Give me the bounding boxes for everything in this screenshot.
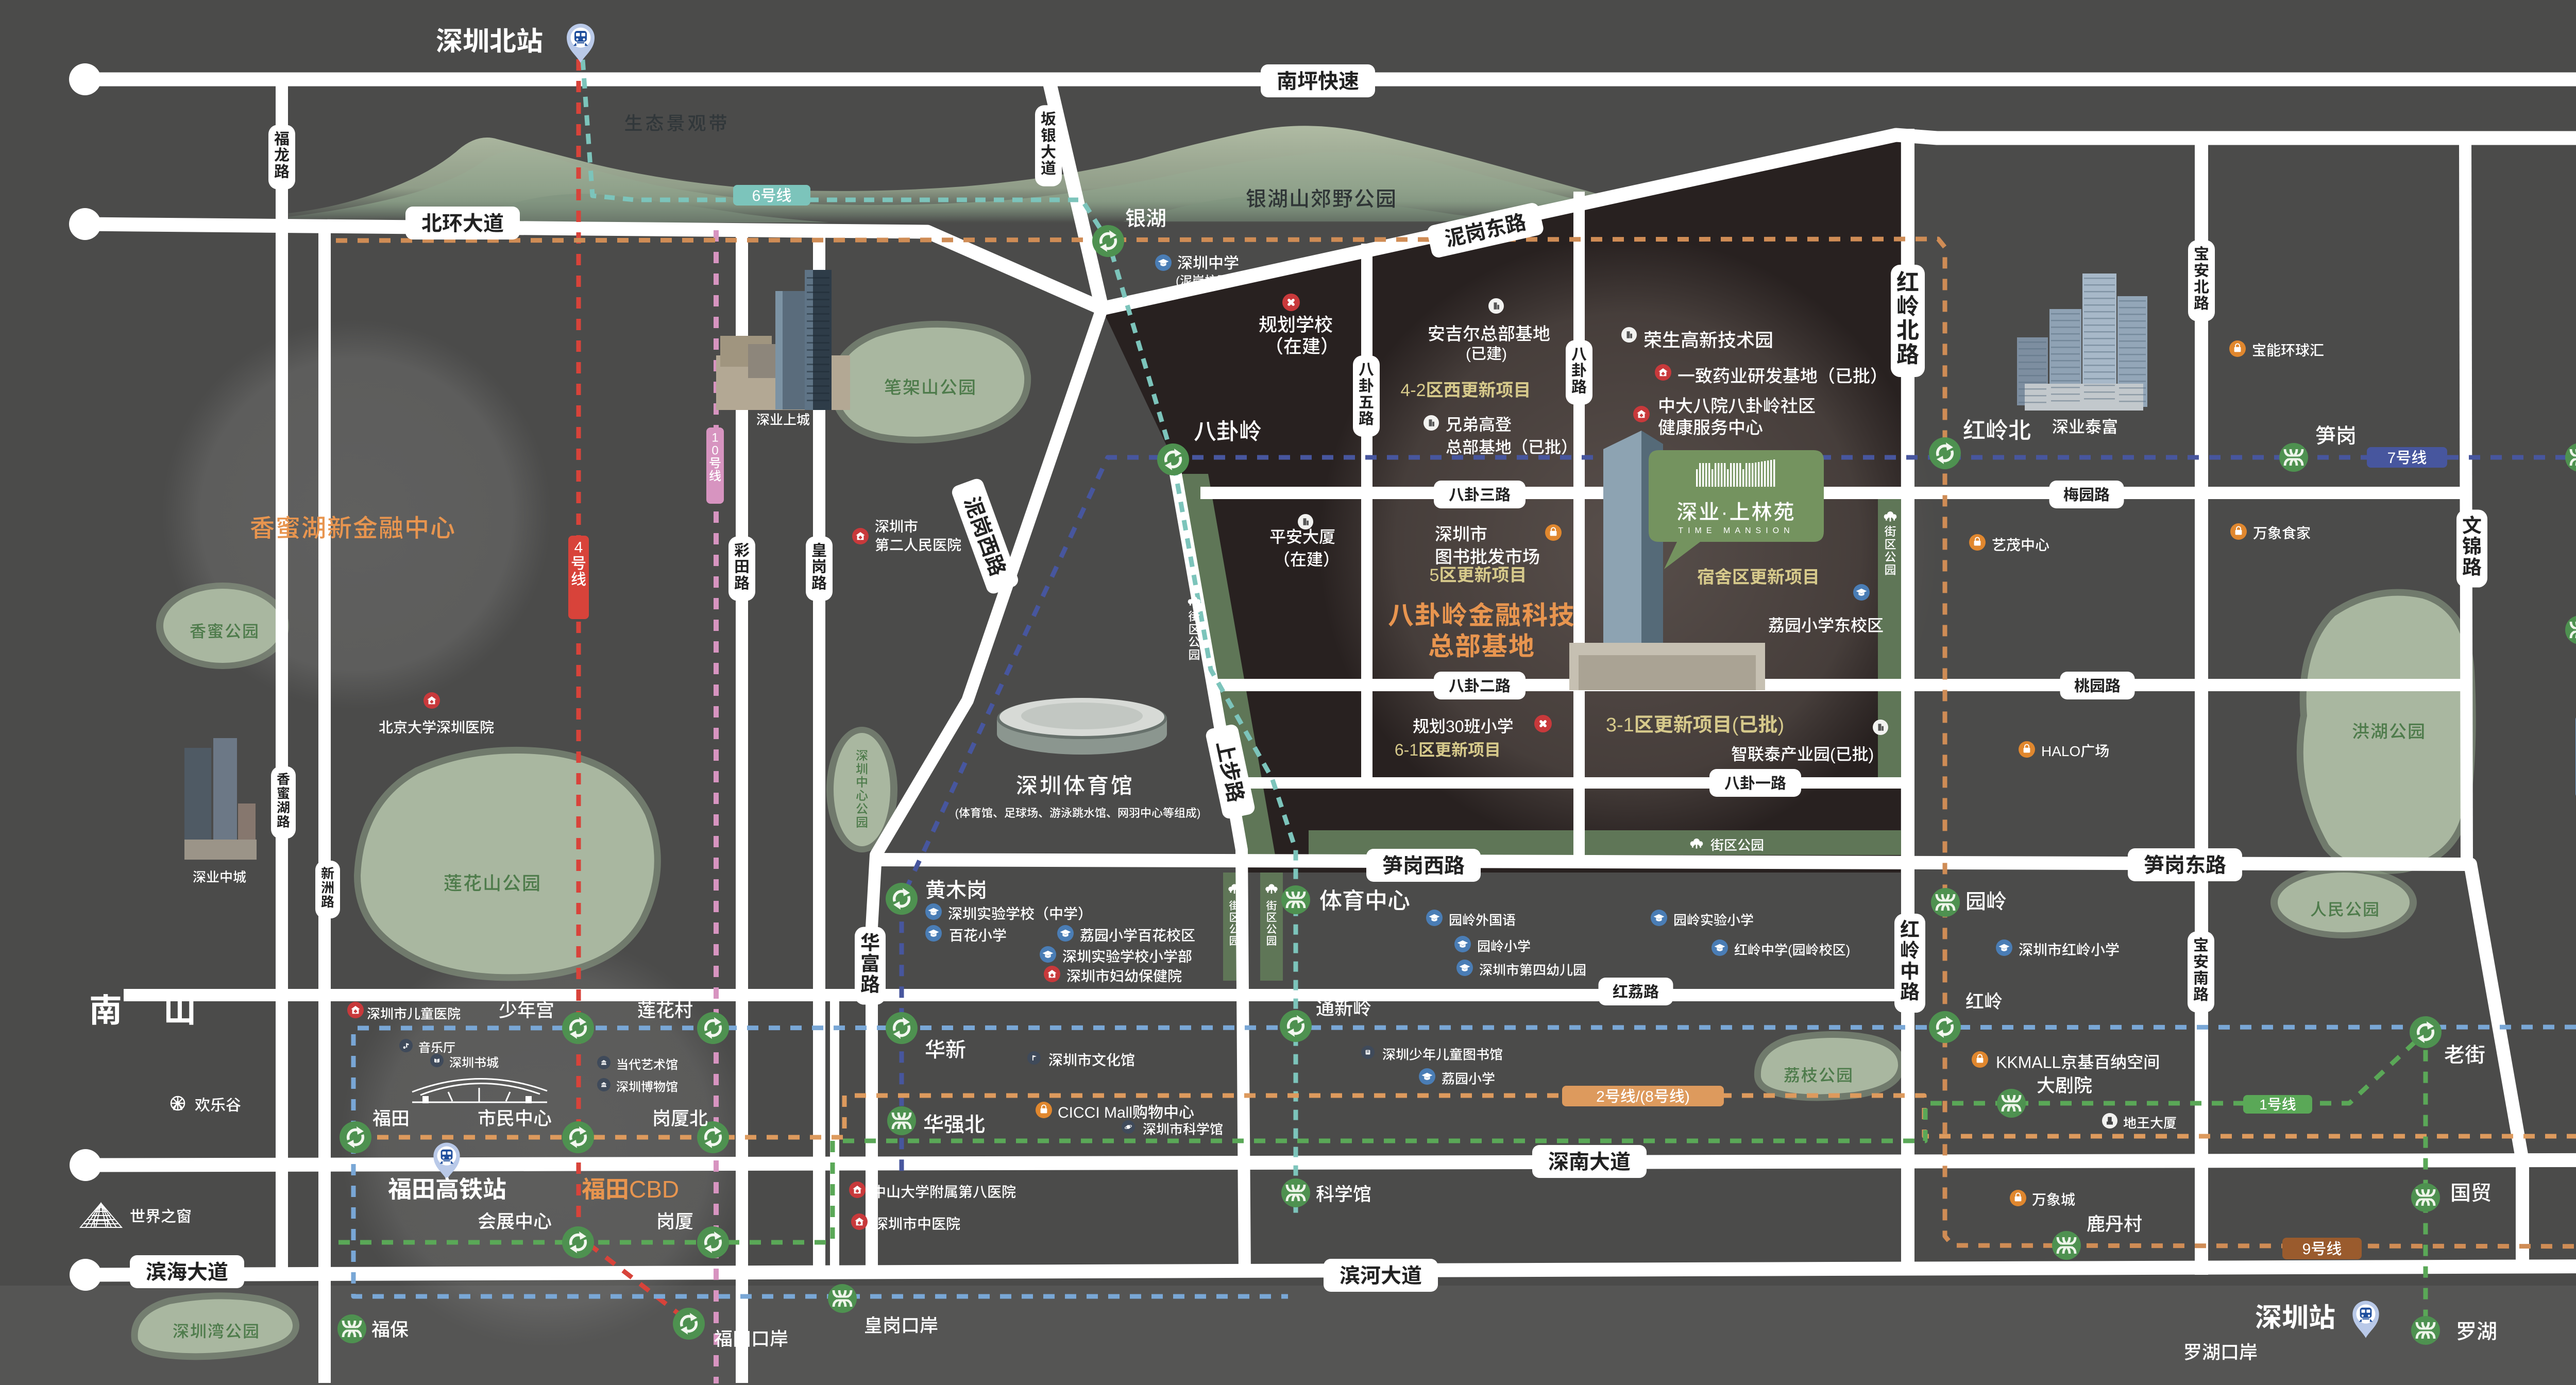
svg-text:荔枝公园: 荔枝公园 — [1784, 1063, 1854, 1086]
svg-text:北京大学深圳医院: 北京大学深圳医院 — [379, 716, 494, 737]
svg-text:(已建): (已建) — [1466, 341, 1507, 364]
svg-text:2号线/(8号线): 2号线/(8号线) — [1596, 1084, 1690, 1106]
svg-text:福保: 福保 — [371, 1315, 409, 1342]
svg-text:园岭实验小学: 园岭实验小学 — [1673, 910, 1754, 929]
svg-text:红岭北: 红岭北 — [1963, 412, 2031, 445]
svg-text:笋岗西路: 笋岗西路 — [1382, 849, 1465, 879]
svg-text:国贸: 国贸 — [2450, 1176, 2492, 1206]
svg-text:八卦岭: 八卦岭 — [1194, 413, 1262, 446]
svg-text:笔架山公园: 笔架山公园 — [884, 373, 977, 399]
svg-text:华新: 华新 — [925, 1033, 966, 1063]
svg-text:园: 园 — [1189, 645, 1200, 663]
svg-text:深圳书城: 深圳书城 — [449, 1053, 499, 1071]
svg-text:八卦二路: 八卦二路 — [1449, 673, 1511, 696]
svg-text:罗湖口岸: 罗湖口岸 — [2183, 1338, 2258, 1364]
svg-text:欢乐谷: 欢乐谷 — [195, 1092, 241, 1115]
svg-text:中山大学附属第八医院: 中山大学附属第八医院 — [872, 1181, 1016, 1202]
svg-text:世界之窗: 世界之窗 — [130, 1204, 192, 1226]
svg-text:智联泰产业园(已批): 智联泰产业园(已批) — [1731, 742, 1874, 765]
svg-text:路: 路 — [860, 968, 880, 997]
svg-text:荔园小学东校区: 荔园小学东校区 — [1768, 613, 1884, 637]
svg-text:园: 园 — [1229, 933, 1240, 948]
svg-text:皇岗口岸: 皇岗口岸 — [864, 1311, 938, 1338]
svg-text:滨海大道: 滨海大道 — [146, 1255, 228, 1285]
svg-text:市民中心: 市民中心 — [478, 1104, 552, 1131]
svg-text:园: 园 — [856, 812, 868, 830]
svg-text:百花小学: 百花小学 — [949, 925, 1007, 945]
svg-text:银湖: 银湖 — [1125, 202, 1166, 232]
svg-text:桃园路: 桃园路 — [2074, 673, 2121, 696]
svg-text:路: 路 — [1359, 406, 1374, 429]
svg-text:（在建）: （在建） — [1274, 547, 1340, 571]
svg-text:艺茂中心: 艺茂中心 — [1992, 534, 2049, 555]
svg-text:笋岗: 笋岗 — [2315, 419, 2357, 449]
svg-text:笋岗东路: 笋岗东路 — [2144, 848, 2226, 878]
svg-text:莲花村: 莲花村 — [637, 996, 693, 1022]
svg-text:岗厦北: 岗厦北 — [652, 1104, 708, 1131]
svg-text:兄弟高登: 兄弟高登 — [1446, 412, 1512, 436]
svg-text:6号线: 6号线 — [752, 183, 792, 206]
svg-text:南: 南 — [89, 984, 122, 1032]
svg-text:平安大厦: 平安大厦 — [1269, 524, 1335, 548]
svg-text:深圳少年儿童图书馆: 深圳少年儿童图书馆 — [1382, 1044, 1503, 1063]
svg-text:南坪快速: 南坪快速 — [1277, 64, 1359, 94]
svg-text:1号线: 1号线 — [2259, 1093, 2296, 1114]
svg-text:深南大道: 深南大道 — [1548, 1145, 1631, 1175]
svg-text:6-1区更新项目: 6-1区更新项目 — [1395, 737, 1501, 761]
svg-text:一致药业研发基地（已批）: 一致药业研发基地（已批） — [1677, 362, 1888, 387]
svg-text:道: 道 — [1041, 156, 1056, 178]
svg-text:深圳市红岭小学: 深圳市红岭小学 — [2019, 939, 2120, 960]
svg-text:莲花山公园: 莲花山公园 — [444, 869, 541, 896]
svg-text:深圳中学: 深圳中学 — [1177, 250, 1239, 273]
svg-text:银湖山郊野公园: 银湖山郊野公园 — [1246, 182, 1397, 212]
svg-text:路: 路 — [274, 159, 290, 182]
svg-text:深圳市妇幼保健院: 深圳市妇幼保健院 — [1066, 965, 1182, 986]
svg-text:深圳市科学馆: 深圳市科学馆 — [1143, 1119, 1223, 1138]
svg-text:香蜜湖新金融中心: 香蜜湖新金融中心 — [250, 508, 456, 544]
svg-text:福田口岸: 福田口岸 — [714, 1324, 788, 1351]
svg-text:园岭小学: 园岭小学 — [1477, 936, 1531, 955]
svg-text:梅园路: 梅园路 — [2063, 482, 2110, 505]
svg-text:街区公园: 街区公园 — [1710, 835, 1764, 854]
svg-text:深圳体育馆: 深圳体育馆 — [1016, 768, 1134, 800]
svg-text:园岭外国语: 园岭外国语 — [1449, 910, 1516, 929]
svg-text:路: 路 — [1896, 336, 1919, 369]
svg-text:深圳市中医院: 深圳市中医院 — [874, 1213, 960, 1234]
svg-text:路: 路 — [321, 892, 334, 911]
svg-text:荔园小学百花校区: 荔园小学百花校区 — [1080, 925, 1195, 945]
svg-text:路: 路 — [2194, 290, 2209, 313]
svg-text:人民公园: 人民公园 — [2310, 897, 2380, 920]
svg-text:园: 园 — [1266, 933, 1277, 948]
svg-text:深圳站: 深圳站 — [2255, 1296, 2335, 1335]
svg-text:总部基地（已批）: 总部基地（已批） — [1446, 435, 1578, 458]
svg-text:红岭: 红岭 — [1965, 987, 2003, 1014]
svg-text:5区更新项目: 5区更新项目 — [1430, 561, 1527, 586]
svg-text:深圳市第四幼儿园: 深圳市第四幼儿园 — [1479, 960, 1586, 979]
svg-text:园岭: 园岭 — [1965, 885, 2007, 915]
svg-text:深圳市儿童医院: 深圳市儿童医院 — [367, 1003, 461, 1022]
svg-text:线: 线 — [571, 567, 586, 589]
svg-text:洪湖公园: 洪湖公园 — [2352, 717, 2426, 743]
svg-text:健康服务中心: 健康服务中心 — [1658, 414, 1763, 439]
svg-text:深圳北站: 深圳北站 — [436, 20, 543, 58]
svg-text:福田高铁站: 福田高铁站 — [388, 1171, 506, 1205]
svg-text:岗厦: 岗厦 — [656, 1207, 693, 1234]
svg-text:八卦三路: 八卦三路 — [1449, 482, 1511, 505]
svg-text:（在建）: （在建） — [1265, 332, 1339, 358]
svg-text:(泥岗校区): (泥岗校区) — [1176, 271, 1233, 289]
svg-text:香蜜公园: 香蜜公园 — [190, 619, 260, 642]
svg-text:通新岭: 通新岭 — [1316, 994, 1371, 1020]
svg-text:罗湖: 罗湖 — [2456, 1315, 2497, 1345]
svg-text:TIME MANSION: TIME MANSION — [1678, 526, 1794, 535]
svg-text:4-2区西更新项目: 4-2区西更新项目 — [1400, 376, 1531, 401]
svg-text:万象食家: 万象食家 — [2253, 522, 2311, 543]
svg-text:KKMALL京基百纳空间: KKMALL京基百纳空间 — [1996, 1050, 2160, 1073]
svg-text:北环大道: 北环大道 — [421, 207, 504, 236]
svg-text:深圳湾公园: 深圳湾公园 — [173, 1319, 260, 1342]
svg-text:山: 山 — [163, 984, 196, 1032]
svg-text:深业泰富: 深业泰富 — [2052, 414, 2118, 438]
svg-text:路: 路 — [277, 812, 290, 831]
svg-text:路: 路 — [1571, 374, 1587, 397]
svg-text:滨河大道: 滨河大道 — [1340, 1259, 1422, 1289]
svg-text:深圳实验学校小学部: 深圳实验学校小学部 — [1062, 946, 1192, 966]
svg-text:宝能环球汇: 宝能环球汇 — [2252, 339, 2324, 360]
svg-text:科学馆: 科学馆 — [1316, 1179, 1371, 1206]
svg-text:深圳市文化馆: 深圳市文化馆 — [1048, 1049, 1135, 1070]
svg-text:黄木岗: 黄木岗 — [925, 874, 987, 903]
svg-text:体育中心: 体育中心 — [1319, 882, 1410, 915]
svg-text:地王大厦: 地王大厦 — [2123, 1113, 2177, 1132]
svg-text:7号线: 7号线 — [2387, 445, 2427, 468]
svg-text:总部基地: 总部基地 — [1428, 626, 1535, 663]
svg-text:路: 路 — [811, 571, 827, 593]
svg-text:少年宫: 少年宫 — [499, 996, 554, 1022]
svg-text:宿舍区更新项目: 宿舍区更新项目 — [1697, 563, 1820, 588]
svg-text:深圳市: 深圳市 — [875, 516, 918, 536]
svg-text:深业中城: 深业中城 — [193, 867, 246, 886]
svg-text:荣生高新技术园: 荣生高新技术园 — [1643, 326, 1773, 352]
svg-text:红荔路: 红荔路 — [1613, 979, 1659, 1002]
svg-text:生态景观带: 生态景观带 — [624, 109, 730, 135]
svg-text:深圳实验学校（中学）: 深圳实验学校（中学） — [948, 903, 1092, 924]
svg-text:华强北: 华强北 — [923, 1108, 985, 1138]
svg-text:万象城: 万象城 — [2032, 1189, 2075, 1209]
svg-text:路: 路 — [2462, 551, 2482, 579]
svg-text:第二人民医院: 第二人民医院 — [875, 534, 961, 555]
svg-text:深圳市: 深圳市 — [1435, 520, 1487, 545]
svg-text:福田: 福田 — [372, 1104, 410, 1131]
svg-text:规划30班小学: 规划30班小学 — [1413, 714, 1514, 738]
svg-text:线: 线 — [709, 466, 721, 484]
svg-text:八卦一路: 八卦一路 — [1724, 771, 1786, 793]
svg-text:3-1区更新项目(已批): 3-1区更新项目(已批) — [1606, 709, 1784, 737]
svg-text:深圳博物馆: 深圳博物馆 — [616, 1077, 678, 1095]
svg-text:深业·上林苑: 深业·上林苑 — [1676, 495, 1795, 525]
svg-text:路: 路 — [734, 571, 750, 593]
svg-text:鹿丹村: 鹿丹村 — [2087, 1209, 2142, 1236]
svg-text:(体育馆、足球场、游泳跳水馆、网羽中心等组成): (体育馆、足球场、游泳跳水馆、网羽中心等组成) — [955, 804, 1201, 820]
svg-text:路: 路 — [1900, 976, 1920, 1004]
svg-text:会展中心: 会展中心 — [478, 1207, 552, 1234]
svg-text:老街: 老街 — [2444, 1038, 2485, 1068]
svg-text:9号线: 9号线 — [2302, 1236, 2342, 1259]
svg-text:福田CBD: 福田CBD — [582, 1171, 679, 1205]
svg-text:红岭中学(园岭校区): 红岭中学(园岭校区) — [1734, 939, 1850, 959]
svg-text:园: 园 — [1885, 560, 1896, 578]
svg-text:当代艺术馆: 当代艺术馆 — [616, 1055, 678, 1073]
svg-text:路: 路 — [2193, 982, 2209, 1004]
svg-text:大剧院: 大剧院 — [2037, 1071, 2092, 1098]
svg-text:HALO广场: HALO广场 — [2041, 740, 2109, 761]
svg-text:深业上城: 深业上城 — [756, 409, 810, 429]
svg-text:荔园小学: 荔园小学 — [1442, 1068, 1495, 1087]
